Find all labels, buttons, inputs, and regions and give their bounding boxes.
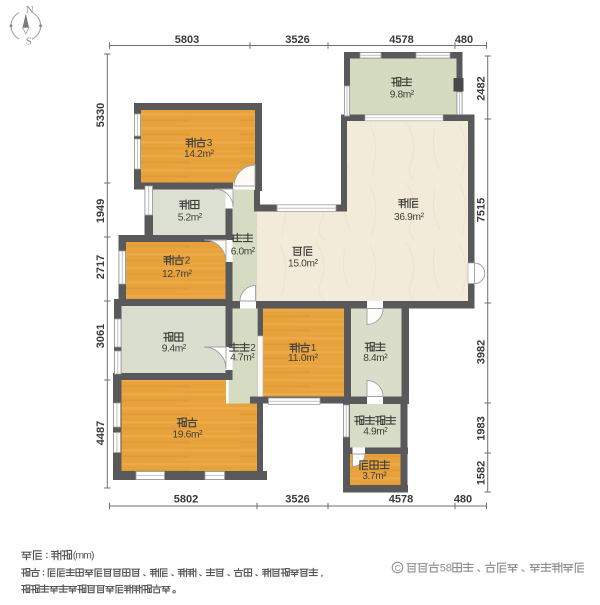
svg-text:3061: 3061 <box>95 324 107 348</box>
svg-text:(mm): (mm) <box>73 550 95 562</box>
svg-text:2: 2 <box>185 256 191 267</box>
svg-text:4578: 4578 <box>389 34 413 46</box>
svg-text:480: 480 <box>454 494 472 506</box>
svg-text:S: S <box>26 36 32 48</box>
svg-text:14.2m²: 14.2m² <box>184 149 215 160</box>
svg-text:9.8m²: 9.8m² <box>390 90 415 101</box>
svg-text:4.9m²: 4.9m² <box>363 427 388 438</box>
svg-text:36.9m²: 36.9m² <box>394 212 425 223</box>
svg-text:3982: 3982 <box>475 340 487 364</box>
svg-text:8.4m²: 8.4m² <box>363 353 388 364</box>
svg-text:N: N <box>26 4 34 16</box>
svg-text:4.7m²: 4.7m² <box>230 353 255 364</box>
svg-text:1949: 1949 <box>95 199 107 223</box>
svg-text:3.7m²: 3.7m² <box>362 471 387 482</box>
svg-text:5803: 5803 <box>175 34 199 46</box>
svg-text:3526: 3526 <box>285 34 309 46</box>
svg-text:11.0m²: 11.0m² <box>288 353 319 364</box>
svg-text:4487: 4487 <box>95 421 107 445</box>
svg-text:1582: 1582 <box>475 461 487 485</box>
svg-text:6.0m²: 6.0m² <box>231 247 256 258</box>
svg-text:C: C <box>395 563 401 573</box>
svg-text:5330: 5330 <box>95 103 107 127</box>
svg-text:9.4m²: 9.4m² <box>162 344 187 355</box>
svg-text:5802: 5802 <box>174 494 198 506</box>
svg-text:12.7m²: 12.7m² <box>162 269 193 280</box>
svg-text:5.2m²: 5.2m² <box>178 213 203 224</box>
svg-text:15.0m²: 15.0m² <box>288 259 319 270</box>
svg-text:2717: 2717 <box>95 255 107 279</box>
svg-text:7515: 7515 <box>475 198 487 222</box>
svg-text:3: 3 <box>207 138 213 149</box>
svg-text:58: 58 <box>440 562 452 574</box>
svg-text:19.6m²: 19.6m² <box>173 430 204 441</box>
svg-text:1983: 1983 <box>475 416 487 440</box>
svg-text:480: 480 <box>455 34 473 46</box>
svg-text:2482: 2482 <box>475 76 487 100</box>
svg-text:4578: 4578 <box>389 494 413 506</box>
svg-text:3526: 3526 <box>285 494 309 506</box>
